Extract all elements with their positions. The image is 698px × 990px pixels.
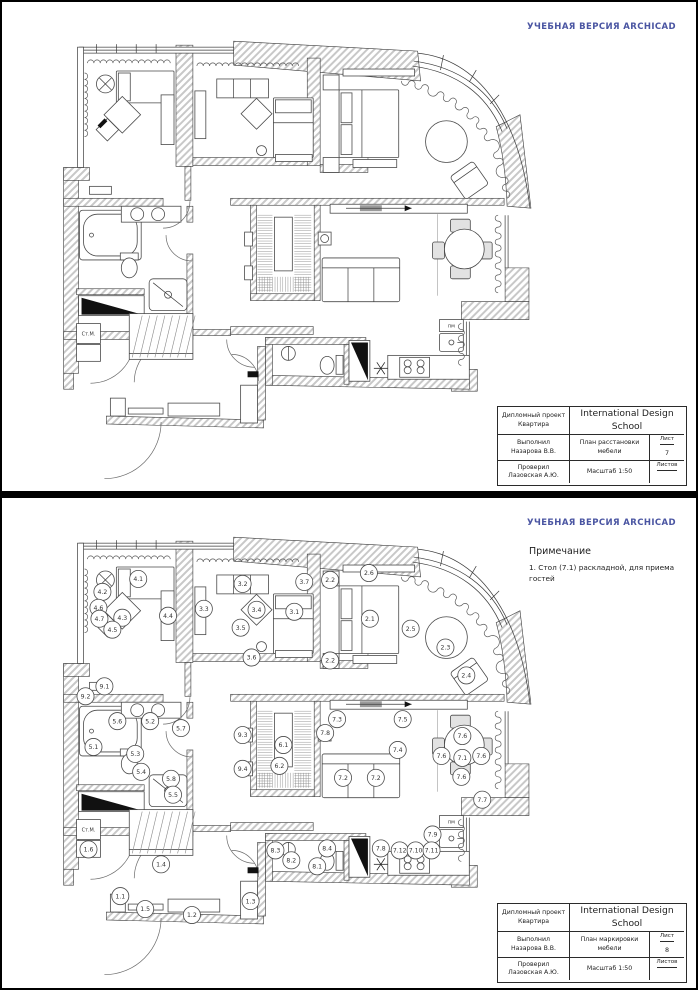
marker-3.6: 3.6 [243, 649, 260, 666]
author-label: Выполнил [517, 439, 550, 447]
svg-text:7.8: 7.8 [320, 730, 330, 737]
marker-4.4: 4.4 [159, 607, 176, 624]
checker-name: Лазовская А.Ю. [508, 472, 559, 480]
marker-5.6: 5.6 [109, 713, 126, 730]
marker-7.6: 7.6 [433, 747, 450, 764]
sheets-cell: Листов [650, 958, 684, 980]
svg-text:7.7: 7.7 [477, 797, 487, 804]
svg-text:4.3: 4.3 [117, 615, 127, 622]
checker-label: Проверил [518, 961, 550, 969]
marker-3.3: 3.3 [195, 600, 212, 617]
marker-2.2: 2.2 [322, 571, 339, 588]
svg-text:1.3: 1.3 [246, 898, 256, 905]
marker-5.2: 5.2 [142, 713, 159, 730]
marker-8.2: 8.2 [283, 852, 300, 869]
note-line: 1. Стол (7.1) раскладной, для приема [529, 563, 689, 574]
svg-text:3.6: 3.6 [247, 655, 257, 662]
marker-7.5: 7.5 [394, 711, 411, 728]
svg-text:7.3: 7.3 [332, 716, 342, 723]
marker-3.1: 3.1 [286, 603, 303, 620]
marker-7.9: 7.9 [424, 826, 441, 843]
svg-text:3.2: 3.2 [238, 581, 248, 588]
project-name: Квартира [518, 421, 549, 429]
marker-7.6: 7.6 [454, 727, 471, 744]
svg-text:9.1: 9.1 [100, 684, 110, 691]
marker-7.2: 7.2 [367, 769, 384, 786]
title-block: Дипломный проект Квартира International … [497, 903, 687, 983]
marker-9.3: 9.3 [234, 727, 251, 744]
drawing-title-cell: План маркировки мебели [570, 932, 650, 958]
project-label: Дипломный проект [502, 412, 565, 420]
svg-text:2.1: 2.1 [365, 616, 375, 623]
sheet-cell: Лист 7 [650, 435, 684, 461]
marker-6.2: 6.2 [271, 757, 288, 774]
archicad-watermark: УЧЕБНАЯ ВЕРСИЯ ARCHICAD [527, 518, 676, 528]
svg-text:1.5: 1.5 [140, 906, 150, 913]
marker-7.10: 7.10 [407, 842, 424, 859]
svg-text:7.2: 7.2 [338, 775, 348, 782]
svg-text:7.6: 7.6 [457, 733, 467, 740]
svg-text:3.1: 3.1 [289, 609, 299, 616]
svg-text:7.12: 7.12 [393, 848, 407, 855]
author-name: Назарова В.В. [511, 448, 556, 456]
sheet-label: Лист [660, 933, 674, 942]
marker-5.4: 5.4 [133, 763, 150, 780]
marker-3.2: 3.2 [234, 575, 251, 592]
svg-text:2.6: 2.6 [364, 570, 374, 577]
note-line: гостей [529, 574, 689, 585]
marker-3.7: 3.7 [296, 573, 313, 590]
svg-text:4.1: 4.1 [133, 576, 143, 583]
svg-text:5.7: 5.7 [176, 725, 186, 732]
svg-text:3.3: 3.3 [199, 606, 209, 613]
svg-text:3.5: 3.5 [236, 625, 246, 632]
sheet-furniture-marking: 4.14.24.64.74.34.54.49.19.23.33.23.73.43… [2, 498, 696, 988]
marker-2.5: 2.5 [402, 620, 419, 637]
svg-text:8.3: 8.3 [271, 848, 281, 855]
svg-text:1.4: 1.4 [156, 861, 166, 868]
svg-text:4.5: 4.5 [107, 627, 117, 634]
sheets-label: Листов [657, 462, 678, 471]
checker-label: Проверил [518, 464, 550, 472]
project-cell: Дипломный проект Квартира [498, 904, 570, 932]
checker-cell: Проверил Лазовская А.Ю. [498, 958, 570, 980]
svg-text:9.4: 9.4 [238, 766, 248, 773]
project-label: Дипломный проект [502, 909, 565, 917]
marker-4.2: 4.2 [94, 583, 111, 600]
sheet-number: 8 [660, 946, 674, 955]
checker-name: Лазовская А.Ю. [508, 969, 559, 977]
marker-7.11: 7.11 [423, 842, 440, 859]
svg-text:8.1: 8.1 [312, 863, 322, 870]
svg-text:4.2: 4.2 [98, 589, 108, 596]
marker-1.2: 1.2 [183, 906, 200, 923]
marker-5.3: 5.3 [127, 745, 144, 762]
marker-4.1: 4.1 [130, 570, 147, 587]
svg-text:8.4: 8.4 [322, 846, 332, 853]
svg-text:3.7: 3.7 [299, 579, 309, 586]
marker-7.1: 7.1 [454, 749, 471, 766]
svg-text:5.8: 5.8 [166, 776, 176, 783]
svg-text:3.4: 3.4 [252, 607, 262, 614]
archicad-watermark: УЧЕБНАЯ ВЕРСИЯ ARCHICAD [527, 22, 676, 32]
sheet-label: Лист [660, 436, 674, 445]
marker-5.7: 5.7 [172, 720, 189, 737]
svg-text:6.1: 6.1 [278, 742, 288, 749]
marker-7.8: 7.8 [317, 725, 334, 742]
svg-text:2.4: 2.4 [461, 673, 471, 680]
marker-5.1: 5.1 [85, 738, 102, 755]
marker-5.5: 5.5 [164, 786, 181, 803]
school-cell: International Design School [570, 407, 684, 435]
author-label: Выполнил [517, 936, 550, 944]
marker-1.5: 1.5 [137, 900, 154, 917]
svg-text:2.2: 2.2 [325, 577, 335, 584]
marker-2.6: 2.6 [360, 564, 377, 581]
sheet-furniture-layout: Ст.М. пм УЧЕБНАЯ ВЕРСИЯ ARCHICAD Дипломн… [2, 2, 696, 491]
svg-text:9.2: 9.2 [81, 693, 91, 700]
marker-8.4: 8.4 [319, 840, 336, 857]
marker-7.6: 7.6 [453, 768, 470, 785]
svg-text:2.3: 2.3 [441, 645, 451, 652]
marker-4.5: 4.5 [104, 621, 121, 638]
marker-7.6: 7.6 [473, 747, 490, 764]
note: Примечание 1. Стол (7.1) раскладной, для… [529, 546, 689, 584]
svg-text:7.4: 7.4 [393, 747, 403, 754]
svg-text:7.11: 7.11 [425, 848, 439, 855]
marker-9.4: 9.4 [234, 760, 251, 777]
svg-text:7.5: 7.5 [398, 716, 408, 723]
svg-text:8.2: 8.2 [286, 858, 296, 865]
svg-text:4.4: 4.4 [163, 613, 173, 620]
school-cell: International Design School [570, 904, 684, 932]
marker-2.2: 2.2 [322, 652, 339, 669]
marker-7.7: 7.7 [474, 791, 491, 808]
marker-7.8: 7.8 [372, 840, 389, 857]
marker-7.3: 7.3 [329, 711, 346, 728]
marker-1.6: 1.6 [80, 841, 97, 858]
drawing-title-cell: План расстановки мебели [570, 435, 650, 461]
svg-text:9.3: 9.3 [238, 732, 248, 739]
svg-text:5.4: 5.4 [136, 769, 146, 776]
marker-9.1: 9.1 [96, 678, 113, 695]
svg-text:7.8: 7.8 [376, 846, 386, 853]
sheets-cell: Листов [650, 461, 684, 483]
marker-8.3: 8.3 [267, 842, 284, 859]
marker-1.3: 1.3 [242, 893, 259, 910]
marker-2.3: 2.3 [437, 639, 454, 656]
marker-5.8: 5.8 [162, 770, 179, 787]
marker-2.4: 2.4 [458, 667, 475, 684]
svg-text:1.6: 1.6 [84, 847, 94, 854]
checker-cell: Проверил Лазовская А.Ю. [498, 461, 570, 483]
marker-1.1: 1.1 [112, 888, 129, 905]
project-name: Квартира [518, 918, 549, 926]
svg-text:7.6: 7.6 [456, 774, 466, 781]
svg-text:7.1: 7.1 [457, 755, 467, 762]
marker-7.12: 7.12 [391, 842, 408, 859]
author-cell: Выполнил Назарова В.В. [498, 435, 570, 461]
marker-3.4: 3.4 [248, 601, 265, 618]
svg-text:5.5: 5.5 [168, 792, 178, 799]
sheet-cell: Лист 8 [650, 932, 684, 958]
svg-text:7.2: 7.2 [371, 775, 381, 782]
marker-8.1: 8.1 [309, 858, 326, 875]
svg-text:5.3: 5.3 [130, 751, 140, 758]
svg-text:7.6: 7.6 [476, 753, 486, 760]
author-name: Назарова В.В. [511, 945, 556, 953]
scale-cell: Масштаб 1:50 [570, 461, 650, 483]
svg-text:5.1: 5.1 [89, 744, 99, 751]
page-divider [2, 491, 696, 498]
svg-text:7.9: 7.9 [428, 832, 438, 839]
svg-text:7.6: 7.6 [437, 753, 447, 760]
svg-text:5.2: 5.2 [145, 718, 155, 725]
marker-7.4: 7.4 [389, 741, 406, 758]
scale-cell: Масштаб 1:50 [570, 958, 650, 980]
marker-9.2: 9.2 [77, 688, 94, 705]
marker-2.1: 2.1 [361, 610, 378, 627]
sheets-label: Листов [657, 959, 678, 968]
svg-text:6.2: 6.2 [275, 763, 285, 770]
svg-text:2.2: 2.2 [325, 658, 335, 665]
marker-6.1: 6.1 [275, 736, 292, 753]
note-title: Примечание [529, 546, 689, 557]
marker-3.5: 3.5 [232, 619, 249, 636]
marker-7.2: 7.2 [334, 769, 351, 786]
screenshot-frame: Ст.М. пм УЧЕБНАЯ ВЕРСИЯ ARCHICAD Дипломн… [0, 0, 698, 990]
svg-text:2.5: 2.5 [406, 626, 416, 633]
svg-text:7.10: 7.10 [409, 848, 423, 855]
author-cell: Выполнил Назарова В.В. [498, 932, 570, 958]
project-cell: Дипломный проект Квартира [498, 407, 570, 435]
sheet-number: 7 [660, 449, 674, 458]
svg-text:1.2: 1.2 [187, 912, 197, 919]
svg-text:4.7: 4.7 [95, 616, 105, 623]
svg-text:5.6: 5.6 [112, 718, 122, 725]
marker-1.4: 1.4 [153, 856, 170, 873]
svg-text:1.1: 1.1 [115, 893, 125, 900]
title-block: Дипломный проект Квартира International … [497, 406, 687, 486]
